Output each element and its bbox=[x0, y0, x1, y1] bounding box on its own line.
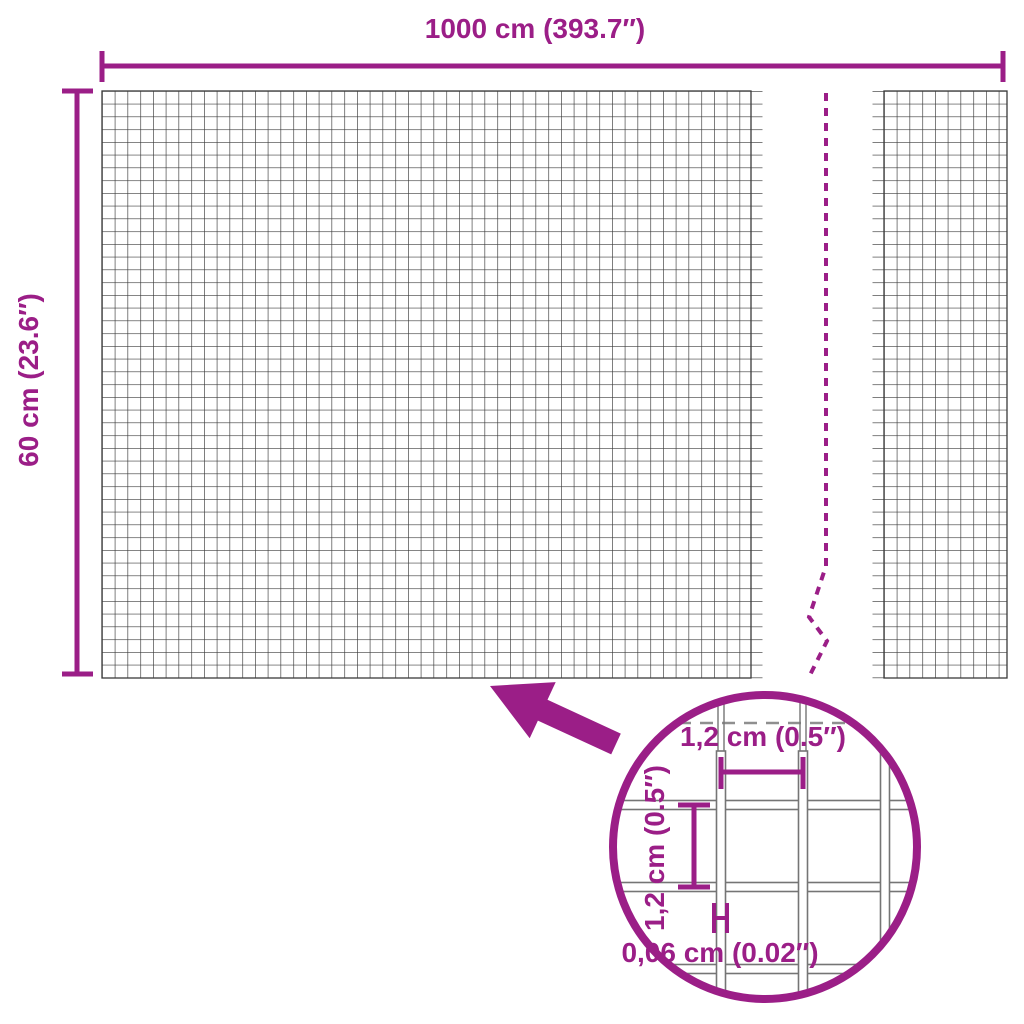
product-dimension-diagram: 1000 cm (393.7″) 60 cm (23.6″) bbox=[0, 0, 1024, 1024]
cell-height-label: 1,2 cm (0.5″) bbox=[639, 765, 670, 931]
height-dimension-line bbox=[62, 91, 93, 674]
width-dimension-label: 1000 cm (393.7″) bbox=[425, 13, 645, 44]
diagram-canvas: 1000 cm (393.7″) 60 cm (23.6″) bbox=[0, 0, 1024, 1024]
zoom-arrow-icon bbox=[490, 682, 621, 754]
width-dimension-line bbox=[102, 51, 1003, 82]
mesh-panel-right bbox=[884, 91, 1007, 678]
mesh-cut-stubs-right bbox=[873, 91, 885, 679]
mesh-panel-left bbox=[102, 91, 751, 678]
break-line bbox=[809, 93, 827, 677]
height-dimension-label: 60 cm (23.6″) bbox=[13, 293, 44, 467]
mesh-cut-stubs-left bbox=[751, 91, 763, 679]
cell-width-label: 1,2 cm (0.5″) bbox=[680, 721, 846, 752]
